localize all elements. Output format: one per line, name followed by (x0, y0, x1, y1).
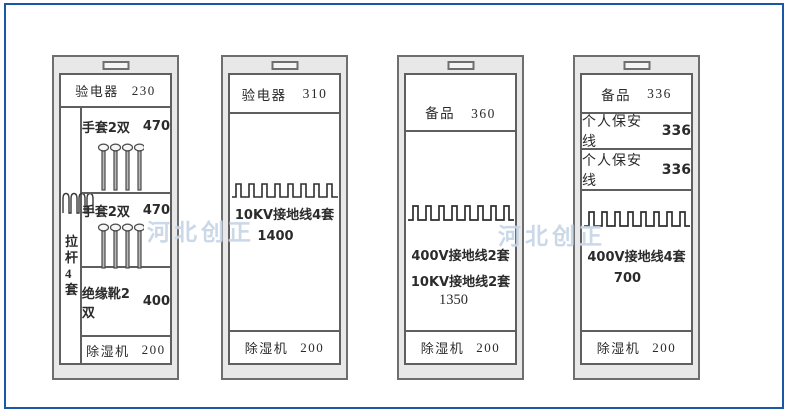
gloves-label: 手套2双 (82, 201, 130, 220)
cabinet-4-header: 备品 336 (582, 75, 691, 114)
cabinet-1-header: 验电器 230 (61, 75, 170, 108)
ground-wire-line2: 10KV接地线2套 (406, 271, 515, 290)
dehumidifier-value: 200 (142, 342, 166, 358)
cabinet-layout-diagram: 验电器 230 拉杆 4套 手套2双 (0, 0, 790, 416)
header-value: 230 (132, 83, 156, 99)
gloves-section-1: 手套2双 470 (82, 108, 170, 194)
dehumidifier-label: 除湿机 (597, 338, 641, 357)
pull-rod-line1: 拉杆 (65, 234, 80, 266)
pin-rack-icon (98, 223, 144, 269)
gloves-value: 470 (143, 119, 170, 134)
boots-label: 绝缘靴2双 (82, 283, 134, 321)
dehumidifier-value: 200 (652, 340, 676, 356)
watermark: 河北创正 (147, 213, 255, 247)
safety-line-value: 336 (662, 123, 691, 139)
dehumidifier-label: 除湿机 (421, 338, 465, 357)
header-label: 验电器 (242, 84, 287, 104)
pin-rack-icon (98, 143, 144, 191)
header-value: 310 (303, 86, 328, 102)
header-value: 336 (647, 86, 672, 102)
boots-value: 400 (143, 294, 170, 309)
cabinet-handle (102, 61, 129, 70)
dehumidifier-section: 除湿机 200 (82, 337, 170, 363)
pull-rod-line2: 4套 (65, 266, 80, 298)
ground-wire-value: 1350 (406, 292, 515, 309)
cabinet-2-header: 验电器 310 (230, 75, 339, 114)
gloves-label: 手套2双 (82, 117, 130, 136)
pull-rod-column: 拉杆 4套 (61, 108, 82, 363)
dehumidifier-value: 200 (300, 340, 324, 356)
grounding-wire-section: 400V接地线4套 700 (582, 191, 691, 332)
header-label: 备品 (425, 102, 455, 122)
safety-line-label: 个人保安线 (582, 111, 651, 151)
personal-safety-line-section-2: 个人保安线 336 (582, 150, 691, 191)
boots-section: 绝缘靴2双 400 (82, 268, 170, 337)
dehumidifier-label: 除湿机 (245, 338, 289, 357)
cabinet-handle (447, 61, 474, 70)
dehumidifier-value: 200 (476, 340, 500, 356)
cabinet-handle (623, 61, 650, 70)
header-label: 验电器 (75, 81, 119, 100)
dehumidifier-section: 除湿机 200 (230, 332, 339, 363)
square-wave-icon (230, 182, 340, 198)
cabinet-3-header: 备品 360 (406, 75, 515, 132)
dehumidifier-section: 除湿机 200 (582, 332, 691, 363)
dehumidifier-label: 除湿机 (86, 341, 130, 360)
safety-line-value: 336 (662, 162, 691, 178)
header-value: 360 (471, 106, 496, 122)
pull-rod-label: 拉杆 4套 (65, 234, 80, 298)
watermark: 河北创正 (498, 217, 606, 251)
personal-safety-line-section-1: 个人保安线 336 (582, 114, 691, 150)
cabinet-handle (271, 61, 298, 70)
header-label: 备品 (601, 84, 631, 104)
dehumidifier-section: 除湿机 200 (406, 332, 515, 363)
safety-line-label: 个人保安线 (582, 150, 651, 190)
ground-wire-value: 700 (582, 271, 691, 286)
